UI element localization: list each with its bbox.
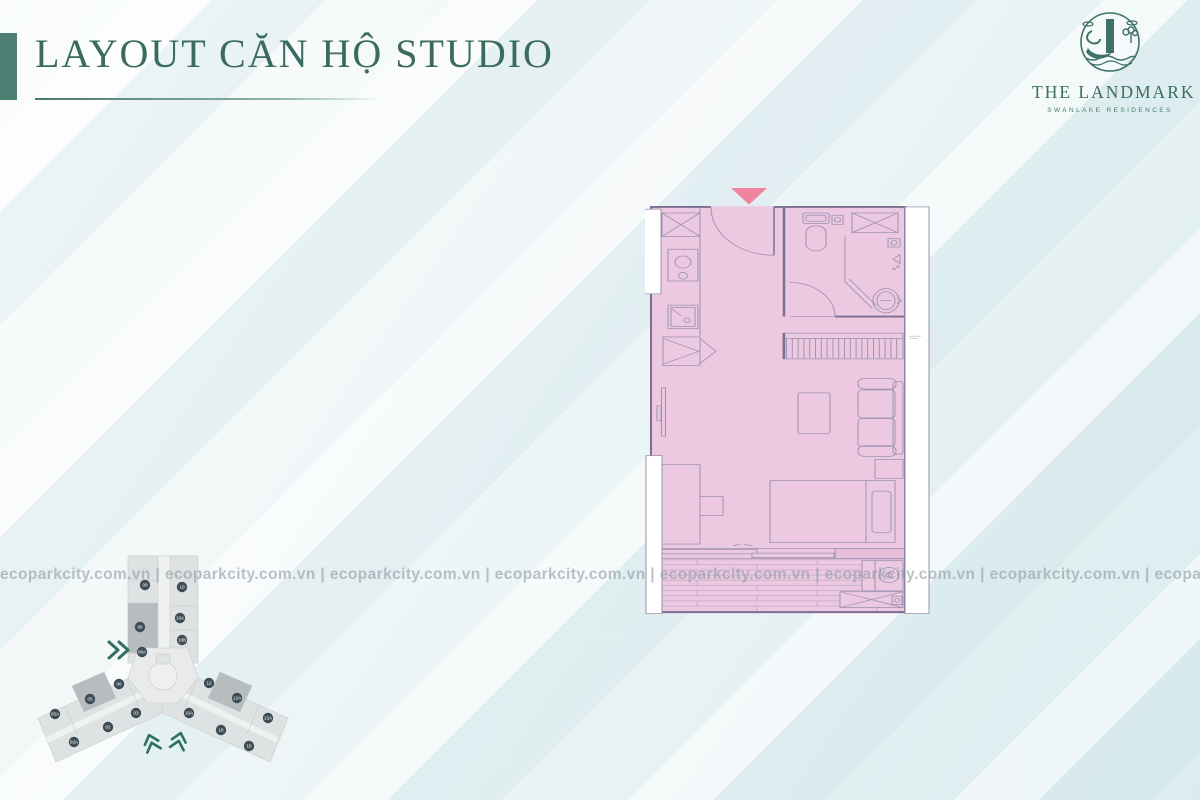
svg-text:03: 03: [133, 711, 139, 716]
unit-label: 05: [85, 694, 95, 704]
unit-label: 02A: [69, 737, 79, 747]
svg-text:15: 15: [246, 744, 252, 749]
unit-label: 15: [244, 741, 254, 751]
chevron-up-icon: [170, 731, 187, 750]
window-column: [905, 207, 929, 614]
unit-label: 12A: [232, 693, 242, 703]
svg-text:05A: 05A: [51, 712, 60, 717]
floor-plan: [645, 185, 935, 758]
svg-text:06: 06: [116, 682, 122, 687]
unit-label: 16: [216, 725, 226, 735]
waves-icon: [1090, 61, 1132, 65]
chevron-right-icon: [109, 642, 128, 658]
swan-emblem-icon: [1032, 10, 1188, 74]
watermark-text: ecoparkcity.com.vn | ecoparkcity.com.vn …: [0, 566, 1200, 588]
chevron-up-icon: [142, 733, 160, 753]
tower-icon: [1106, 19, 1114, 53]
svg-text:16A: 16A: [185, 711, 194, 716]
logo-tagline: SWANLAKE RESIDENCES: [1032, 107, 1188, 114]
svg-text:16: 16: [218, 728, 224, 733]
entrance-arrow-icon: [731, 188, 767, 205]
slide: LAYOUT CĂN HỘ STUDIO THE LANDMARK SWANLA…: [0, 0, 1200, 800]
title-accent-bar: [0, 33, 17, 100]
page-title: LAYOUT CĂN HỘ STUDIO: [35, 30, 554, 77]
svg-text:12A: 12A: [233, 696, 242, 701]
svg-text:08: 08: [137, 625, 143, 630]
svg-text:02: 02: [105, 725, 111, 730]
svg-text:08A: 08A: [138, 650, 147, 655]
unit-label: 08A: [137, 647, 147, 657]
svg-text:12: 12: [206, 681, 212, 686]
window-column: [645, 209, 661, 294]
logo-name: THE LANDMARK: [1032, 82, 1188, 103]
unit-label: 06: [114, 679, 124, 689]
svg-text:10A: 10A: [176, 616, 185, 621]
swan-neck-icon: [1087, 31, 1100, 43]
unit-label: 05A: [50, 709, 60, 719]
unit-label: 08: [135, 622, 145, 632]
unit-label: 10A: [175, 613, 185, 623]
unit-label: 03: [131, 708, 141, 718]
svg-text:02A: 02A: [70, 740, 79, 745]
window-column: [646, 456, 662, 614]
svg-text:10B: 10B: [178, 638, 186, 643]
title-underline: [35, 98, 383, 100]
landmark-logo: THE LANDMARK SWANLAKE RESIDENCES: [1032, 10, 1188, 114]
svg-text:15A: 15A: [264, 716, 273, 721]
unit-label: 12: [204, 678, 214, 688]
unit-label: 10B: [177, 635, 187, 645]
svg-text:05: 05: [87, 697, 93, 702]
unit-label: 02: [103, 722, 113, 732]
ac-unit: [840, 592, 903, 608]
unit-label: 16A: [184, 708, 194, 718]
unit-label: 15A: [263, 713, 273, 723]
